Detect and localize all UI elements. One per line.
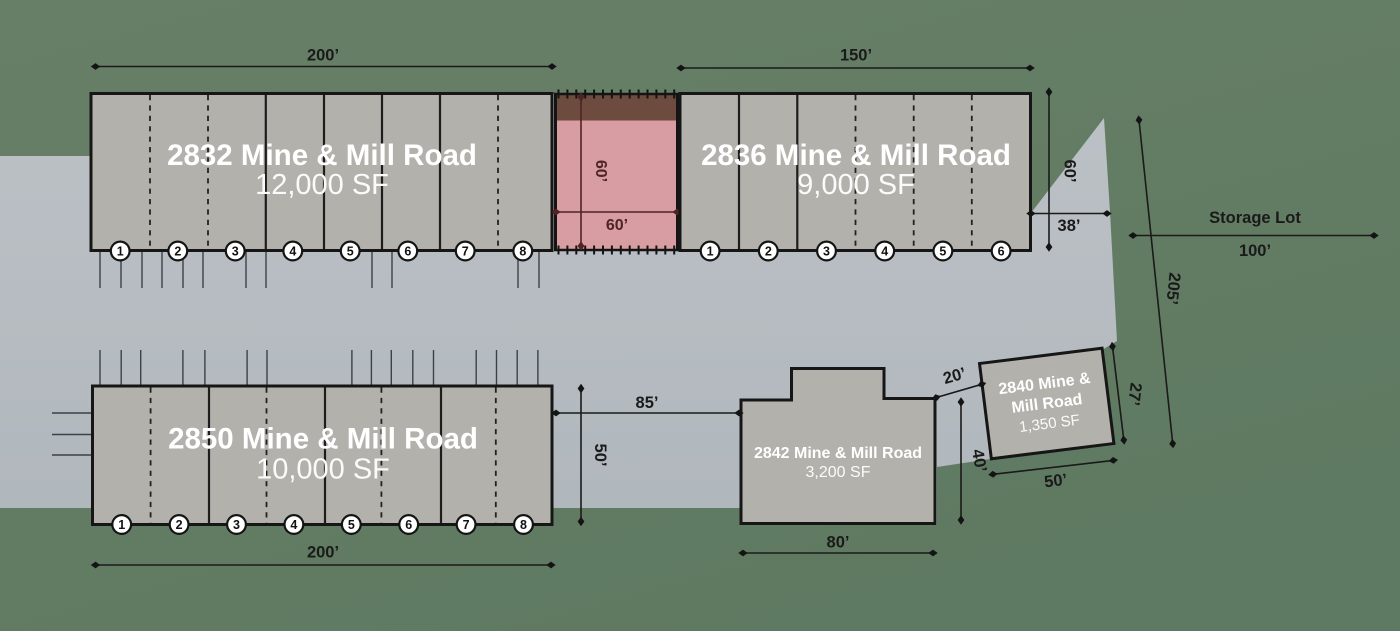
svg-text:60’: 60’	[1061, 160, 1079, 183]
svg-text:5: 5	[347, 244, 354, 258]
svg-text:60’: 60’	[606, 217, 628, 234]
svg-text:200’: 200’	[307, 544, 339, 562]
svg-text:2850 Mine & Mill Road: 2850 Mine & Mill Road	[168, 423, 478, 456]
svg-text:1: 1	[118, 518, 125, 532]
svg-text:6: 6	[998, 244, 1005, 258]
svg-text:5: 5	[348, 518, 355, 532]
svg-text:8: 8	[519, 244, 526, 258]
svg-text:2836 Mine & Mill Road: 2836 Mine & Mill Road	[701, 139, 1011, 172]
svg-text:150’: 150’	[840, 47, 872, 65]
svg-text:2832 Mine & Mill Road: 2832 Mine & Mill Road	[167, 139, 477, 172]
svg-text:3: 3	[233, 518, 240, 532]
svg-text:12,000 SF: 12,000 SF	[255, 169, 389, 201]
svg-text:27’: 27’	[1124, 382, 1145, 407]
svg-text:205’: 205’	[1162, 272, 1183, 306]
svg-text:9,000 SF: 9,000 SF	[797, 169, 915, 201]
svg-text:2842 Mine & Mill Road: 2842 Mine & Mill Road	[754, 445, 922, 462]
svg-text:50’: 50’	[1043, 471, 1068, 492]
svg-text:3,200 SF: 3,200 SF	[806, 464, 871, 481]
svg-text:6: 6	[405, 518, 412, 532]
svg-text:4: 4	[289, 244, 296, 258]
svg-text:60’: 60’	[592, 160, 609, 182]
svg-text:3: 3	[232, 244, 239, 258]
svg-text:7: 7	[462, 244, 469, 258]
svg-text:1: 1	[707, 244, 714, 258]
svg-text:6: 6	[404, 244, 411, 258]
svg-text:7: 7	[463, 518, 470, 532]
svg-text:2: 2	[174, 244, 181, 258]
svg-text:5: 5	[939, 244, 946, 258]
svg-text:2: 2	[176, 518, 183, 532]
svg-text:3: 3	[823, 244, 830, 258]
svg-text:4: 4	[881, 244, 888, 258]
svg-text:50’: 50’	[591, 444, 609, 467]
svg-text:38’: 38’	[1058, 217, 1081, 235]
svg-text:10,000 SF: 10,000 SF	[256, 454, 390, 486]
svg-text:2: 2	[765, 244, 772, 258]
svg-text:85’: 85’	[636, 394, 659, 412]
svg-text:1: 1	[117, 244, 124, 258]
svg-text:Storage Lot: Storage Lot	[1209, 209, 1301, 227]
svg-text:4: 4	[290, 518, 297, 532]
svg-text:200’: 200’	[307, 47, 339, 65]
svg-text:80’: 80’	[827, 534, 850, 552]
svg-text:100’: 100’	[1239, 242, 1271, 260]
svg-text:8: 8	[520, 518, 527, 532]
